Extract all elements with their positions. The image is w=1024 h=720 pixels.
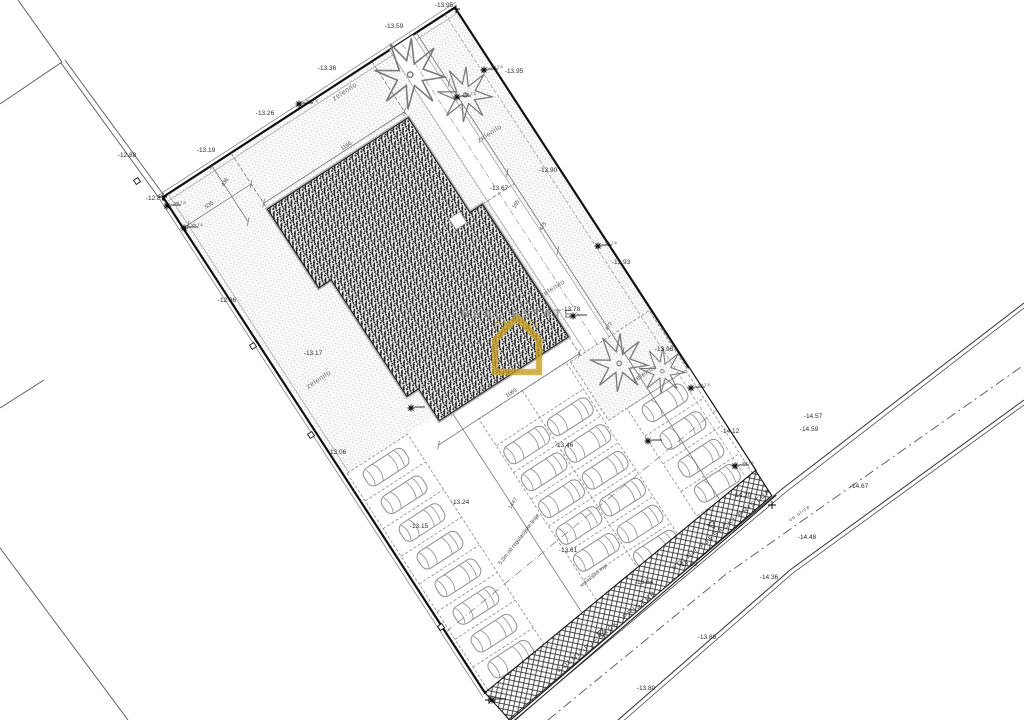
parcel-group <box>156 1 802 720</box>
site-plan-drawing <box>0 0 1024 720</box>
site-plan-page: { "watermark": { "line1": "REAL ESTATE",… <box>0 0 1024 720</box>
watermark: REAL ESTATE CROATIA <box>458 305 578 328</box>
watermark-brand-text: REAL ESTATE <box>458 307 578 321</box>
cadastral-lines <box>0 0 163 720</box>
watermark-sub-text: CROATIA <box>458 321 578 328</box>
